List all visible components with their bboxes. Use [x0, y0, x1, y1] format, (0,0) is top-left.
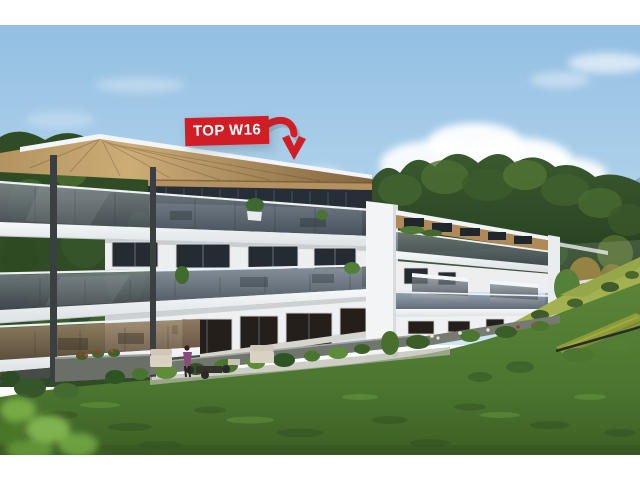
apartment-badge[interactable]: TOP W16 [185, 116, 270, 146]
apartment-badge-label: TOP W16 [193, 121, 262, 140]
letterbox-bottom [0, 455, 640, 480]
real-estate-rendering: TOP W16 [0, 0, 640, 480]
letterbox-top [0, 0, 640, 25]
building-photo [0, 25, 640, 455]
scene-svg [0, 25, 640, 455]
